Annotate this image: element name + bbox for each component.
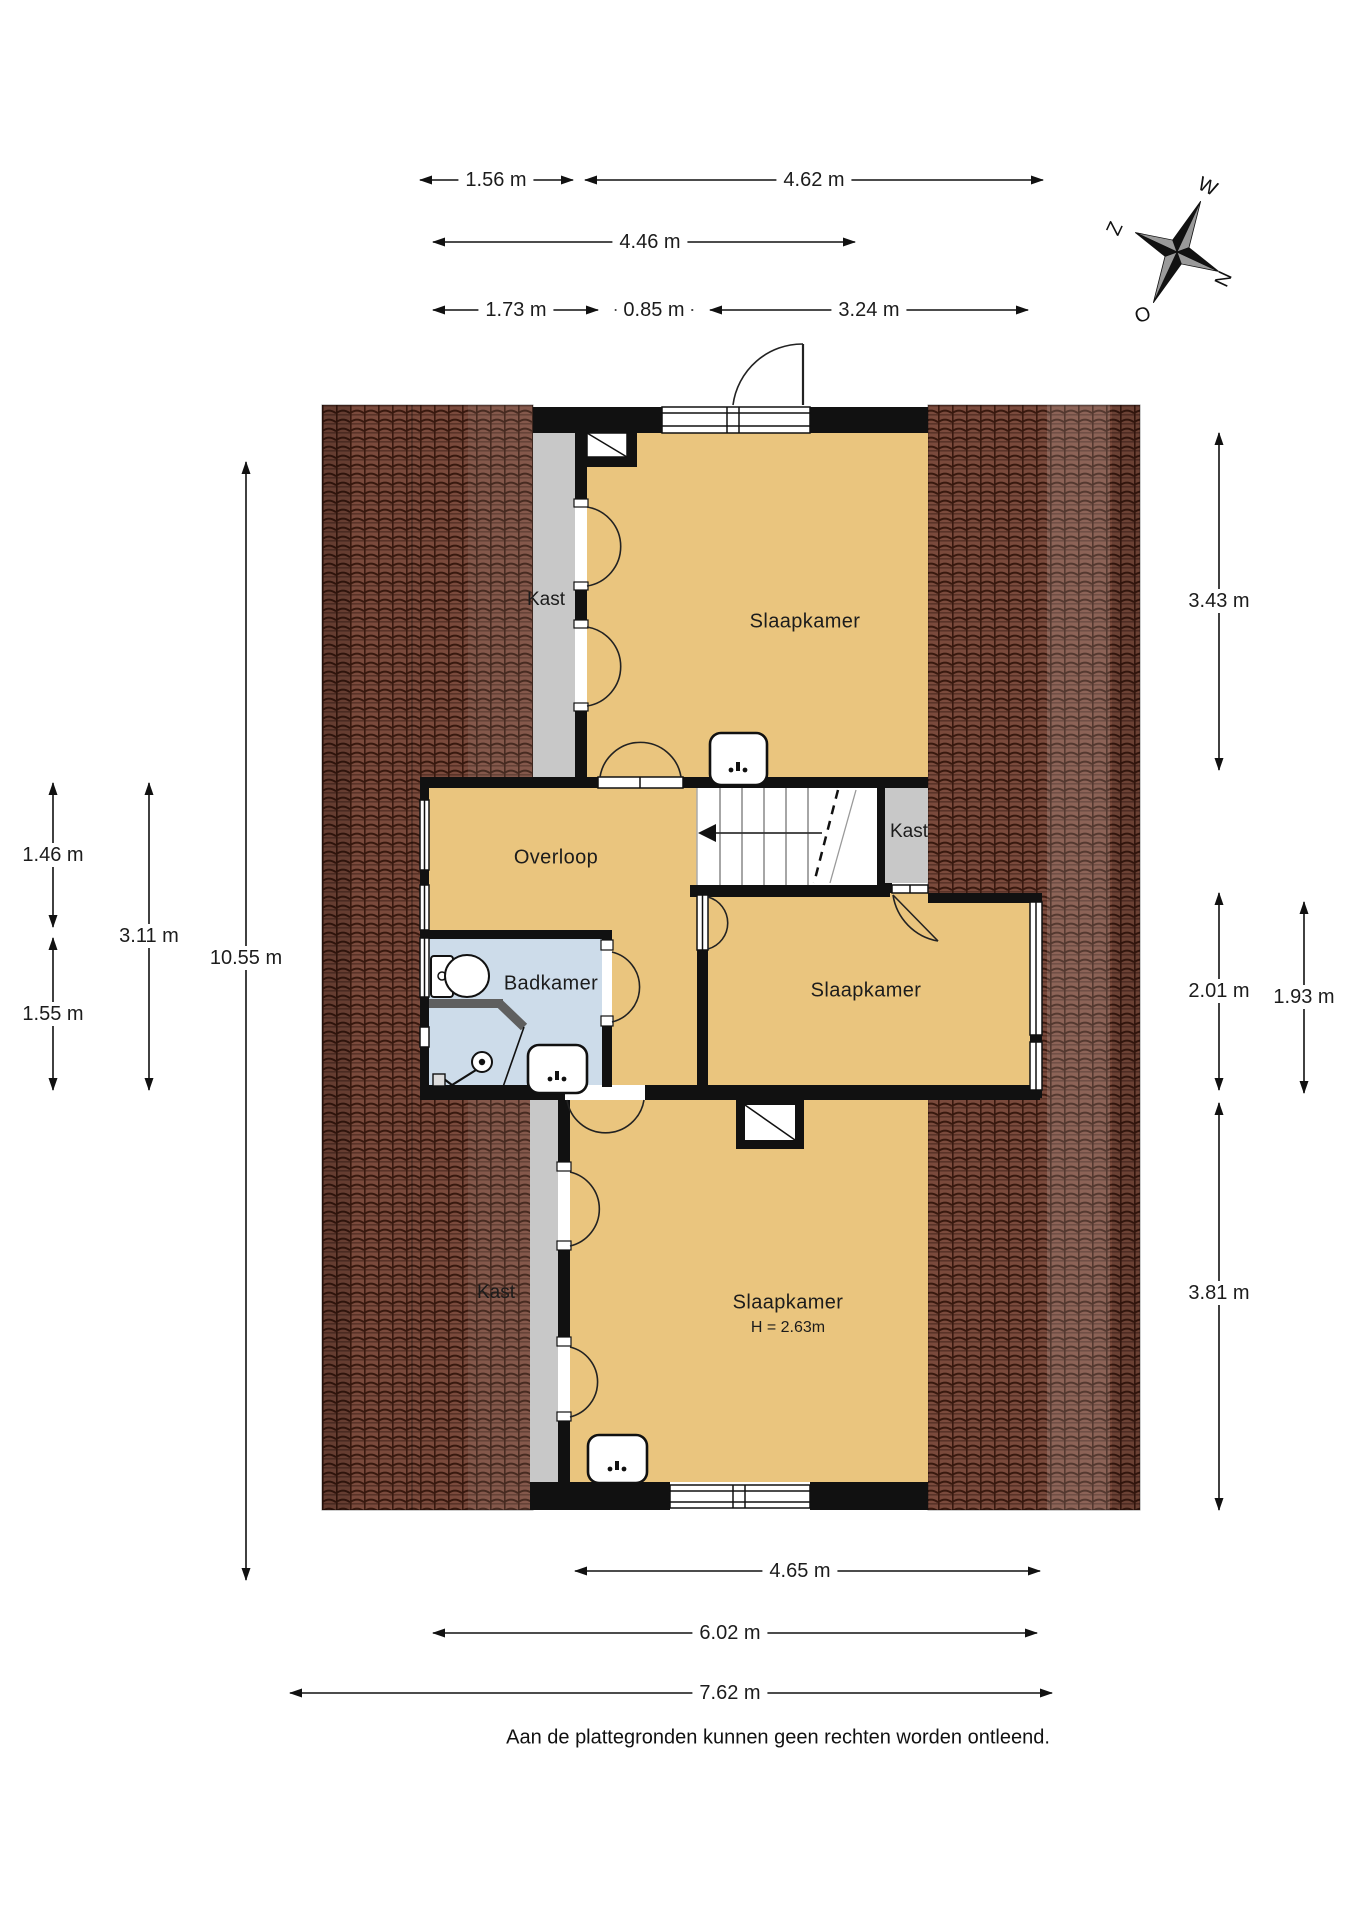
dim-4-62: 4.62 m xyxy=(776,168,851,192)
compass-north-label: N xyxy=(1211,268,1237,290)
dim-2-01: 2.01 m xyxy=(1181,979,1256,1003)
room-label-closet-top: Kast xyxy=(527,589,565,611)
dim-4-46: 4.46 m xyxy=(612,230,687,254)
dim-0-85: 0.85 m xyxy=(616,298,691,322)
dim-3-43: 3.43 m xyxy=(1181,589,1256,613)
dim-3-11: 3.11 m xyxy=(112,924,186,948)
knee-wall-closet-bottom xyxy=(530,1100,558,1485)
dim-1-46: 1.46 m xyxy=(15,843,90,867)
room-label-bedroom-top: Slaapkamer xyxy=(750,611,861,634)
ceiling-height-label: H = 2.63m xyxy=(751,1319,825,1337)
dim-6-02: 6.02 m xyxy=(692,1621,767,1645)
washbasin-bedroom-top-icon xyxy=(710,733,767,785)
dim-10-55: 10.55 m xyxy=(203,946,289,970)
dim-1-93: 1.93 m xyxy=(1266,985,1341,1009)
floorplan-page: W O Z N Slaapkamer Kast Overloop Kast Ba… xyxy=(0,0,1358,1920)
stairwell xyxy=(697,788,877,885)
duct-top xyxy=(587,433,627,457)
room-bedroom-top xyxy=(587,433,928,777)
dim-4-65: 4.65 m xyxy=(762,1559,837,1583)
compass-east-label: O xyxy=(1132,302,1154,328)
room-label-landing: Overloop xyxy=(514,847,598,870)
room-label-bedroom-mid: Slaapkamer xyxy=(811,980,922,1003)
compass-south-label: Z xyxy=(1103,218,1128,238)
washbasin-bathroom-icon xyxy=(528,1045,587,1093)
dim-7-62: 7.62 m xyxy=(692,1681,767,1705)
room-landing-corridor xyxy=(612,930,697,1085)
toilet-icon xyxy=(431,955,489,997)
duct-bottom xyxy=(736,1096,804,1149)
dim-1-73: 1.73 m xyxy=(478,298,553,322)
compass-west-label: W xyxy=(1194,173,1221,201)
room-label-bathroom: Badkamer xyxy=(504,973,598,996)
room-label-bedroom-bottom: Slaapkamer xyxy=(733,1292,844,1315)
dim-1-55: 1.55 m xyxy=(15,1002,90,1026)
dim-3-24: 3.24 m xyxy=(831,298,906,322)
room-label-closet-bottom: Kast xyxy=(477,1282,515,1304)
room-label-closet-mid: Kast xyxy=(890,821,928,843)
washbasin-bedroom-bottom-icon xyxy=(588,1435,647,1483)
dim-1-56: 1.56 m xyxy=(458,168,533,192)
compass-rose: W O Z N xyxy=(1071,144,1271,356)
dim-3-81: 3.81 m xyxy=(1181,1281,1256,1305)
disclaimer-text: Aan de plattegronden kunnen geen rechten… xyxy=(506,1727,1050,1750)
